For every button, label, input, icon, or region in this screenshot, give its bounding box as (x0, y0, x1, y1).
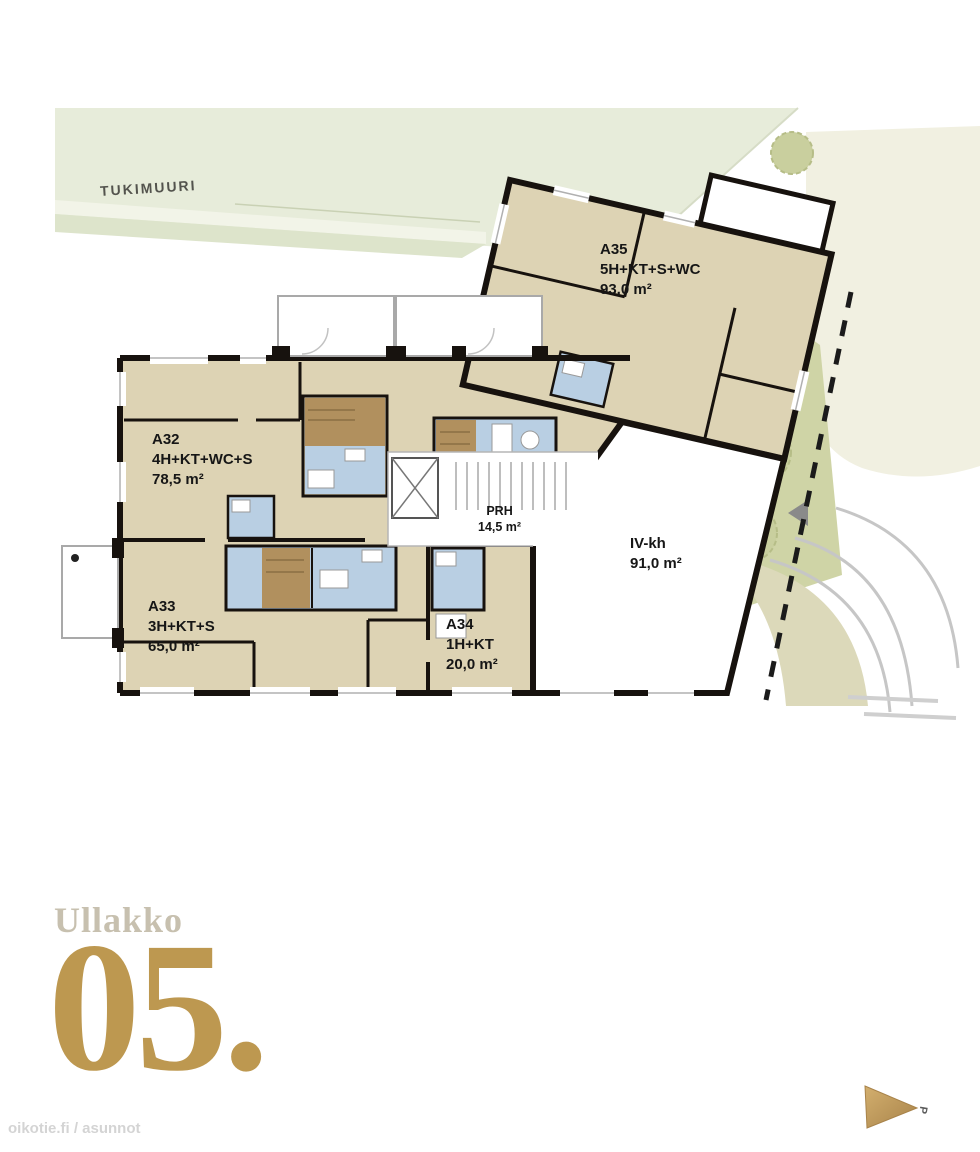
room-id: PRH (478, 504, 521, 520)
watermark: oikotie.fi / asunnot (8, 1120, 141, 1137)
apartment-id: A32 (152, 430, 252, 450)
apartment-area: 78,5 m² (152, 470, 252, 490)
apartment-area: 65,0 m² (148, 637, 215, 657)
apartment-label-a35: A35 5H+KT+S+WC 93,0 m² (600, 240, 700, 299)
apartment-area: 93,0 m² (600, 280, 700, 300)
neighbor-plot (806, 126, 980, 477)
room-label-ivkh: IV-kh 91,0 m² (630, 534, 682, 574)
balcony (62, 538, 124, 648)
apartment-rooms: 3H+KT+S (148, 617, 215, 637)
sauna-area (303, 396, 387, 496)
apartment-label-a32: A32 4H+KT+WC+S 78,5 m² (152, 430, 252, 489)
apartment-id: A33 (148, 597, 215, 617)
sauna-area (226, 546, 396, 610)
apartment-id: A35 (600, 240, 700, 260)
tree-icon (771, 132, 813, 174)
room-area: 14,5 m² (478, 520, 521, 536)
apartment-label-a34: A34 1H+KT 20,0 m² (446, 615, 498, 674)
apartment-area: 20,0 m² (446, 655, 498, 675)
bathroom-area (228, 496, 274, 538)
balcony (272, 296, 548, 360)
apartment-rooms: 4H+KT+WC+S (152, 450, 252, 470)
room-area: 91,0 m² (630, 554, 682, 574)
apartment-rooms: 5H+KT+S+WC (600, 260, 700, 280)
elevator-icon (392, 458, 438, 518)
room-label-prh: PRH 14,5 m² (478, 504, 521, 535)
floor-number: 05. (48, 915, 264, 1100)
apartment-id: A34 (446, 615, 498, 635)
room-id: IV-kh (630, 534, 682, 554)
apartment-label-a33: A33 3H+KT+S 65,0 m² (148, 597, 215, 656)
apartment-rooms: 1H+KT (446, 635, 498, 655)
floor-plan-page: TUKIMUURI A35 5H+KT+S+WC 93,0 m² A32 4H+… (0, 0, 980, 1152)
north-arrow-icon (865, 1086, 917, 1128)
